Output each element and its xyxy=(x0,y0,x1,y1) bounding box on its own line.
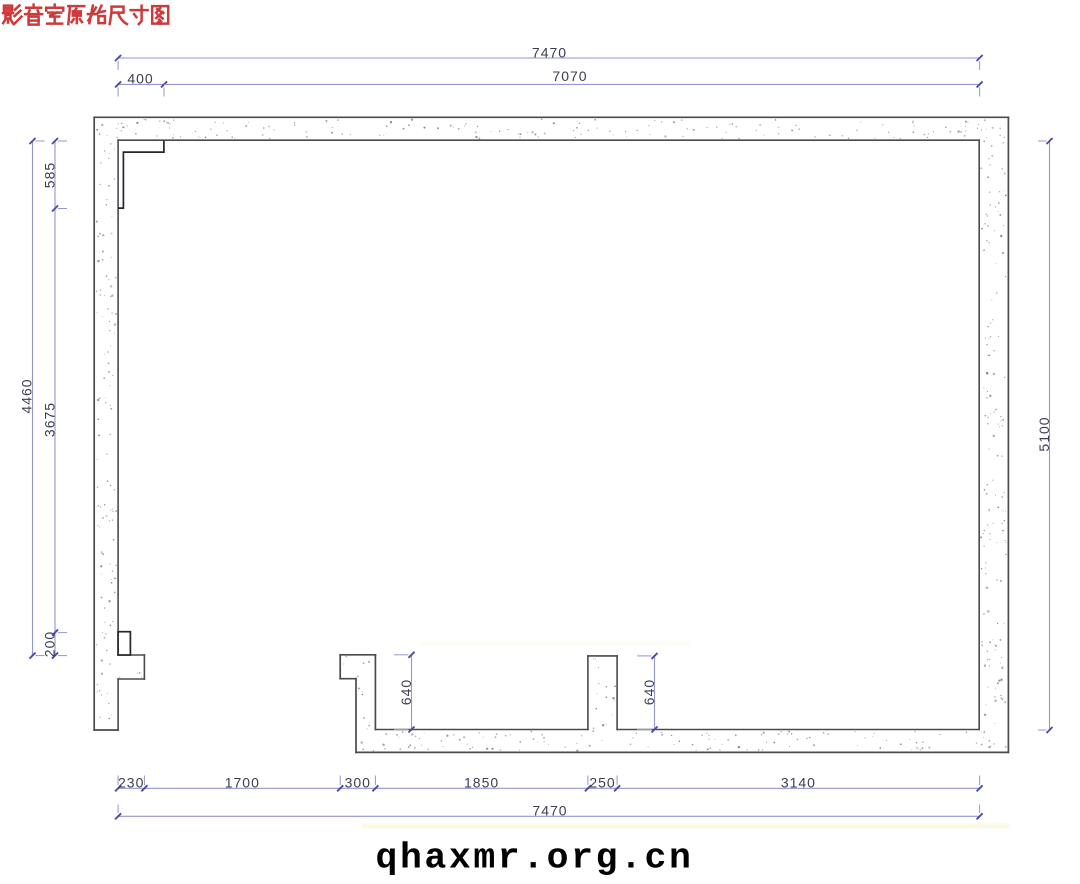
svg-text:250: 250 xyxy=(589,774,615,790)
svg-text:640: 640 xyxy=(398,679,414,705)
svg-text:300: 300 xyxy=(345,774,371,790)
svg-text:3140: 3140 xyxy=(781,774,816,790)
svg-text:1850: 1850 xyxy=(464,774,499,790)
svg-text:200: 200 xyxy=(42,631,58,657)
svg-text:400: 400 xyxy=(127,71,153,87)
svg-text:1700: 1700 xyxy=(225,774,260,790)
svg-text:3675: 3675 xyxy=(42,402,58,437)
svg-text:7070: 7070 xyxy=(552,68,587,84)
svg-text:7470: 7470 xyxy=(532,803,567,819)
svg-text:7470: 7470 xyxy=(532,44,567,60)
svg-text:qhaxmr.org.cn: qhaxmr.org.cn xyxy=(376,838,694,879)
svg-text:640: 640 xyxy=(641,679,657,705)
svg-text:4460: 4460 xyxy=(19,378,35,413)
svg-text:585: 585 xyxy=(42,162,58,188)
svg-text:230: 230 xyxy=(118,774,144,790)
svg-text:5100: 5100 xyxy=(1036,416,1052,451)
